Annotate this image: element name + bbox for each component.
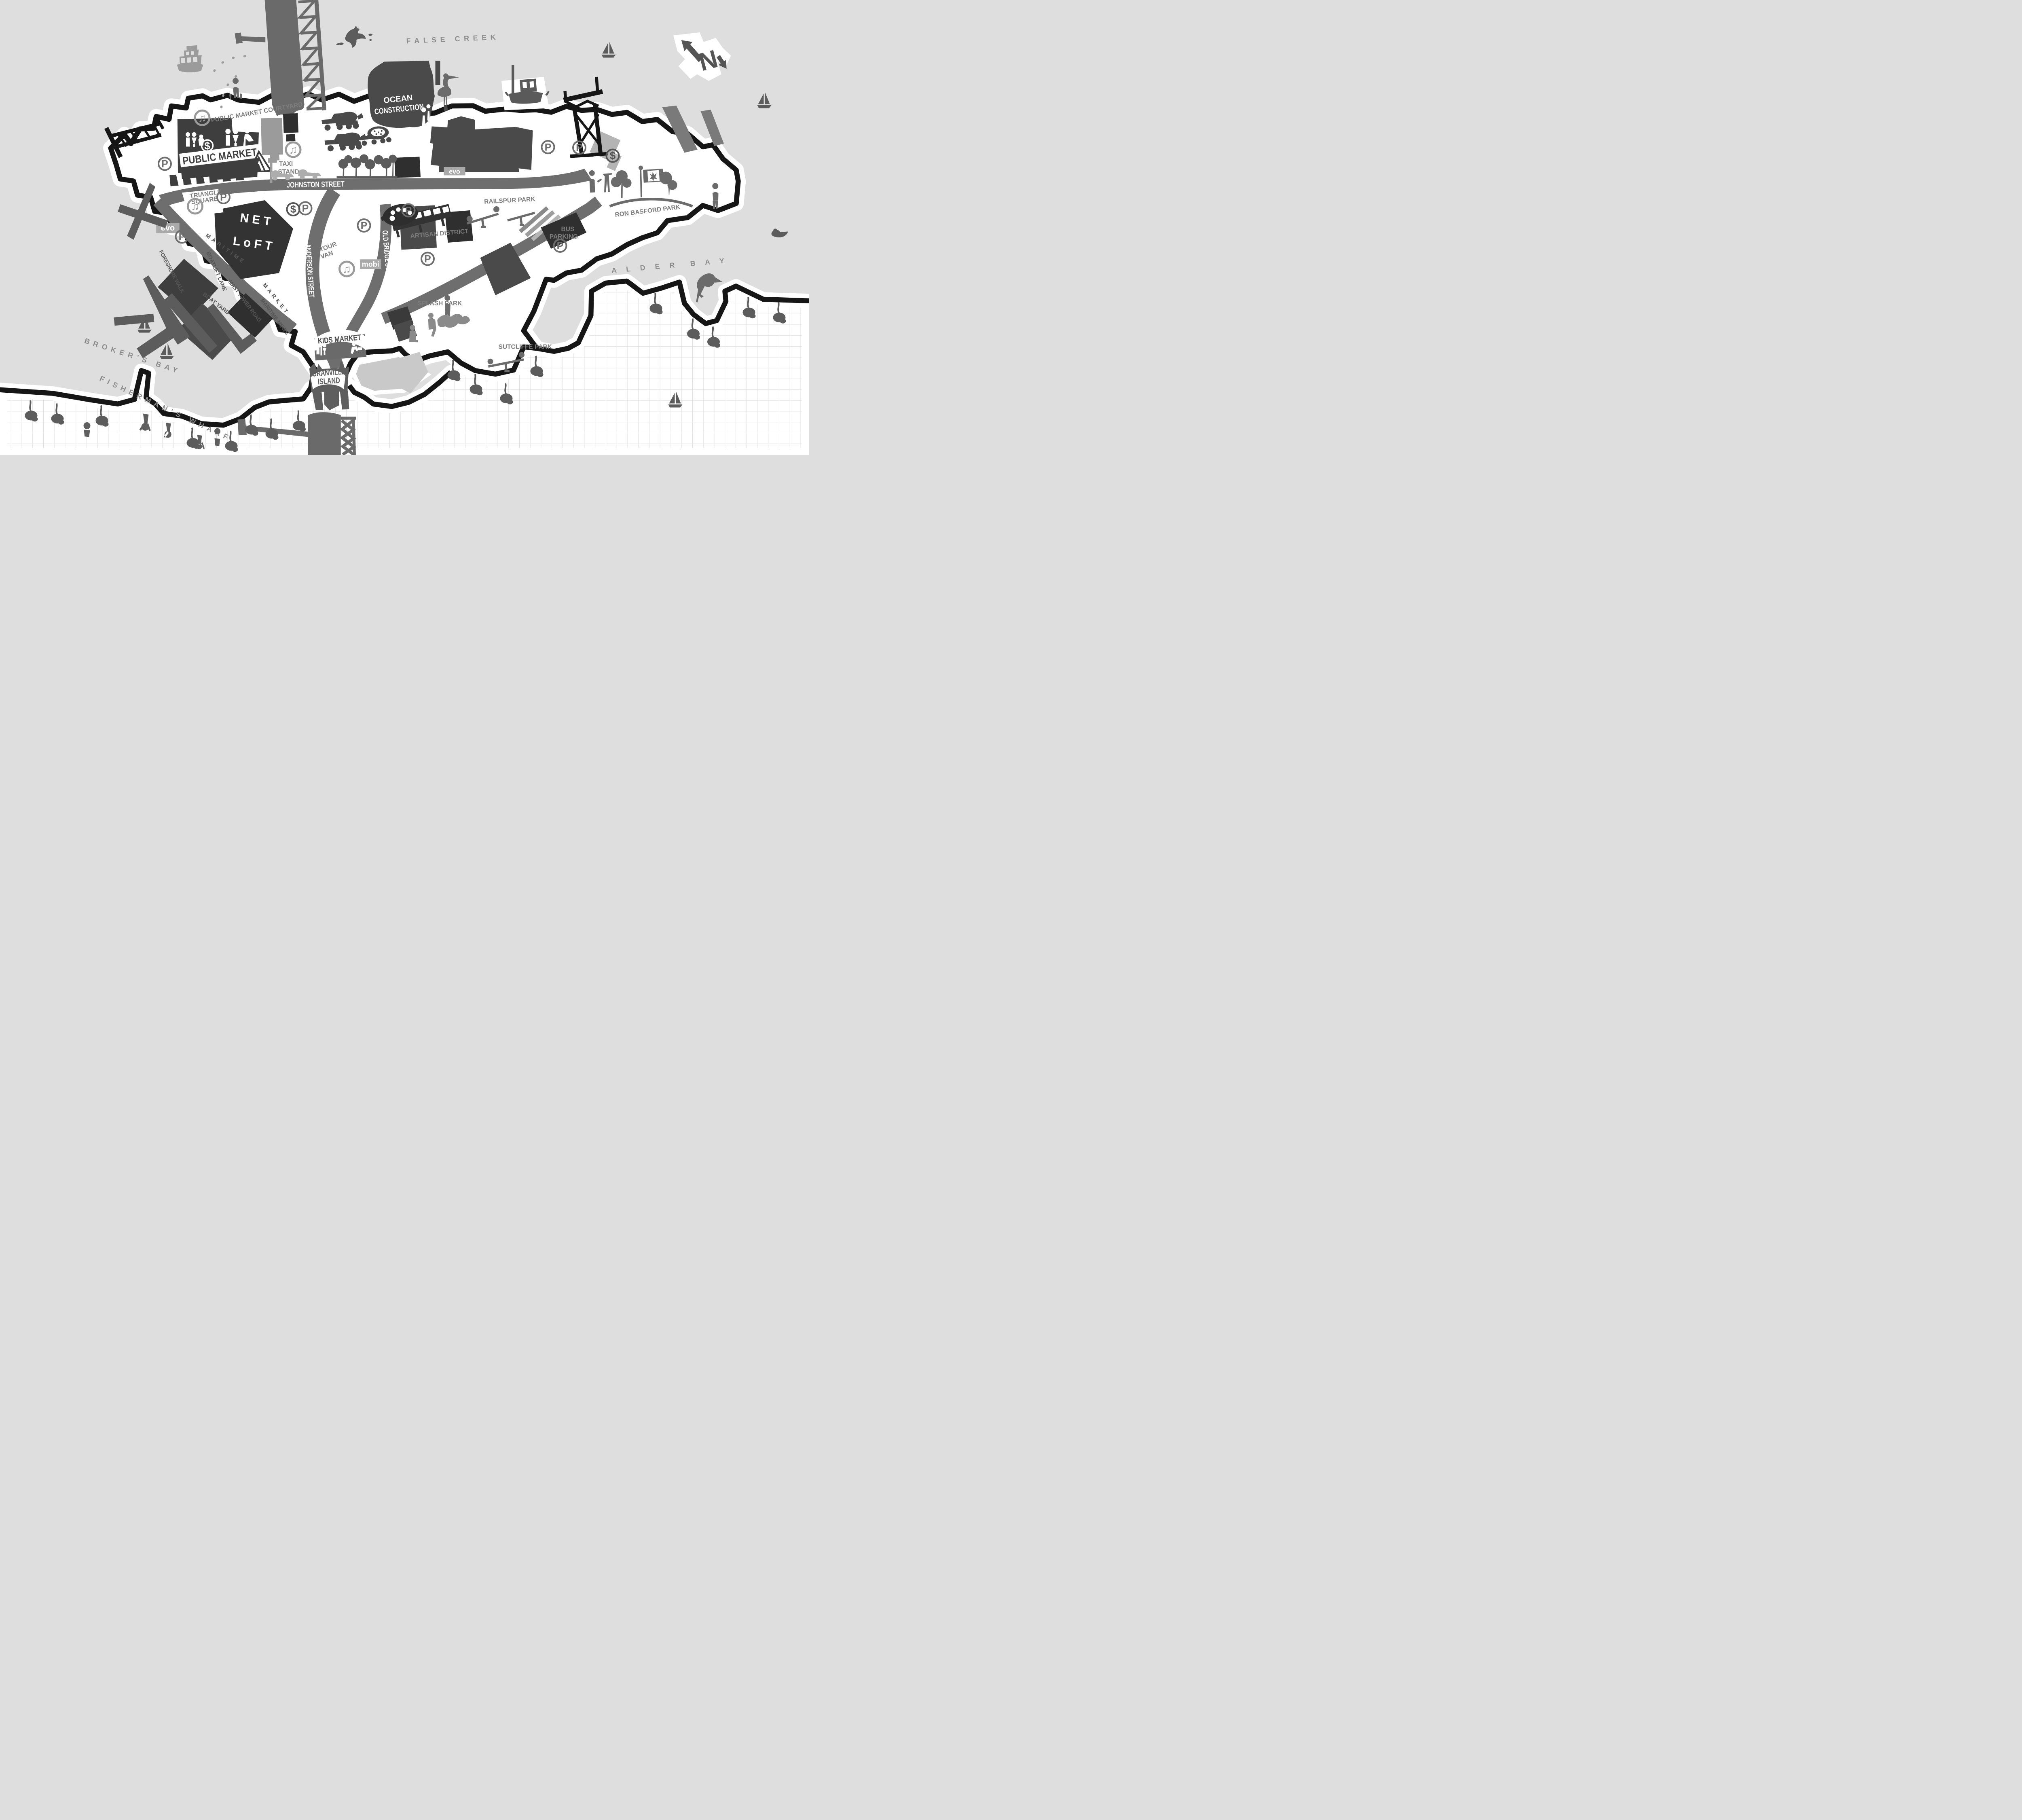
- svg-text:TAXI: TAXI: [279, 161, 293, 167]
- svg-text:ISLAND: ISLAND: [317, 376, 340, 387]
- svg-text:mobi: mobi: [362, 260, 379, 269]
- svg-text:SUTCLIFFE PARK: SUTCLIFFE PARK: [499, 344, 552, 351]
- svg-text:JOHNSTON STREET: JOHNSTON STREET: [287, 180, 345, 189]
- svg-text:evo: evo: [449, 168, 460, 175]
- svg-text:PARKING: PARKING: [550, 233, 578, 240]
- svg-text:$: $: [204, 140, 210, 152]
- svg-text:SPLASH PARK: SPLASH PARK: [418, 300, 463, 307]
- svg-text:BUS: BUS: [561, 226, 575, 233]
